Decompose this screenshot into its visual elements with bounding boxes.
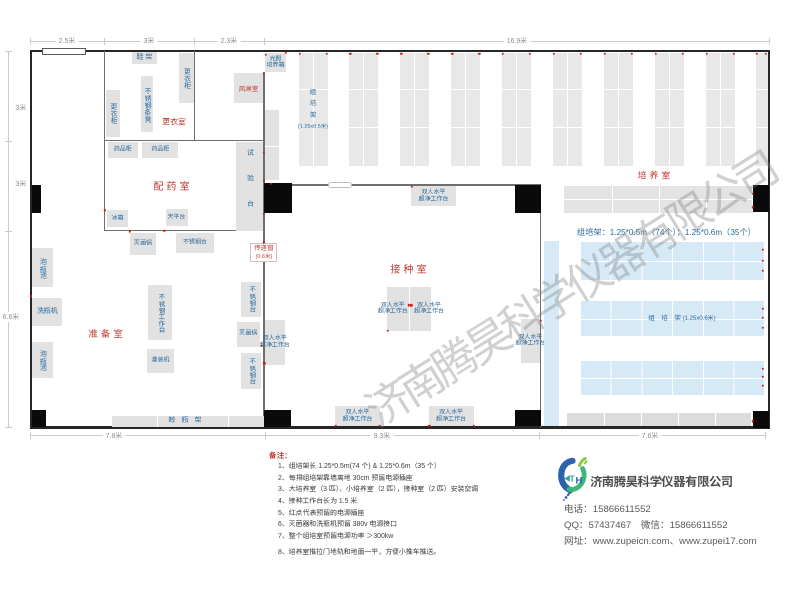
svg-text:H: H xyxy=(576,476,583,487)
